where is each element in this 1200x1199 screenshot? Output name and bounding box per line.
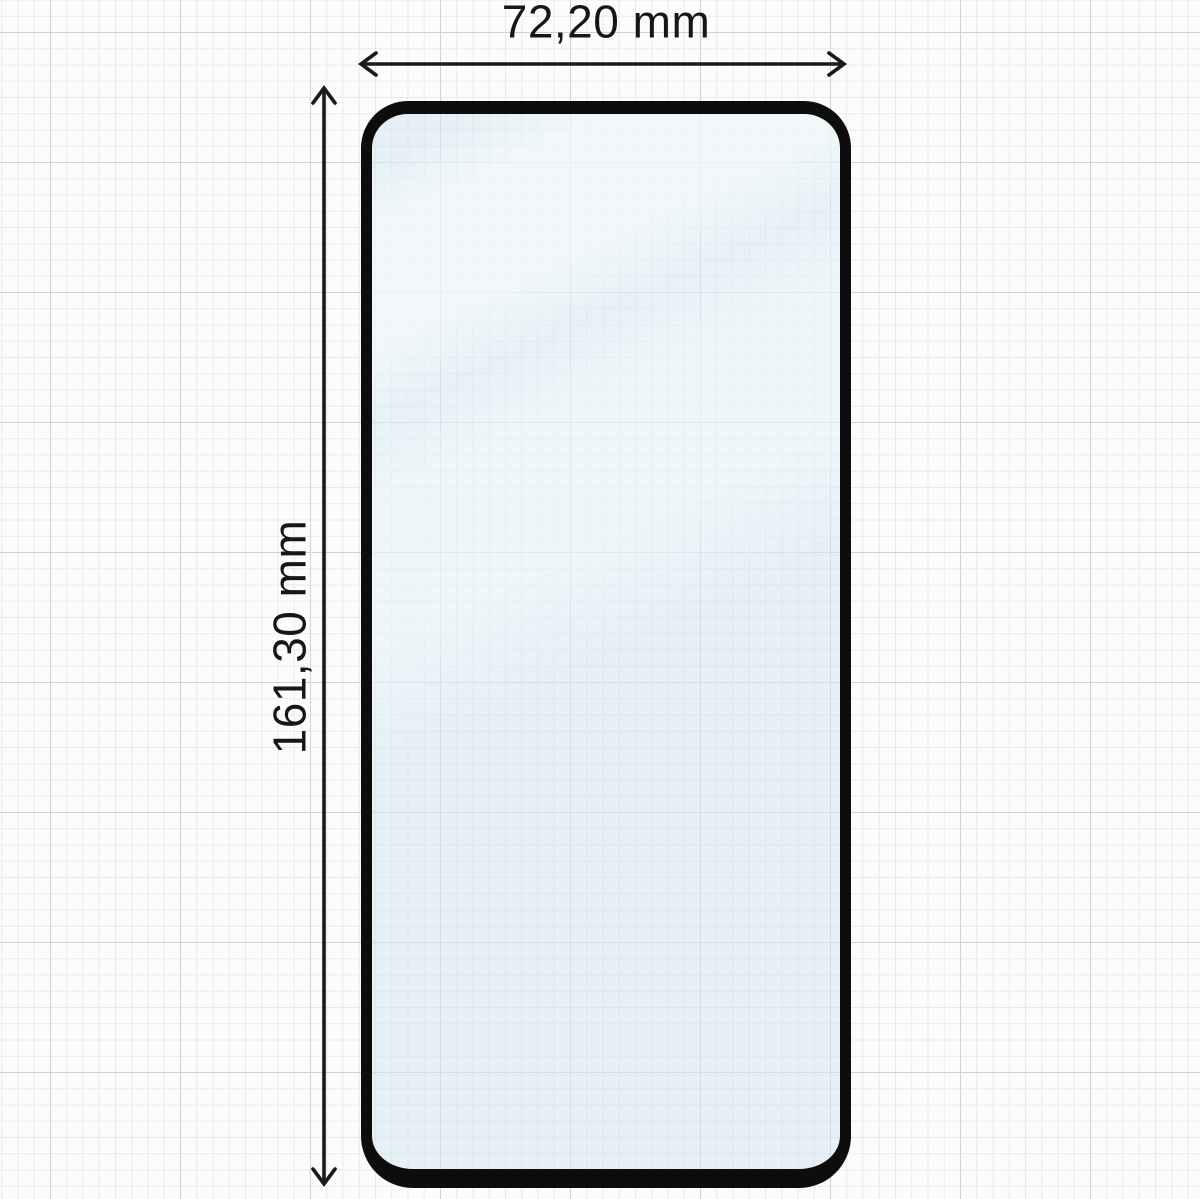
glass-reflection	[372, 114, 840, 1169]
width-arrow-head-right	[829, 53, 844, 75]
width-arrow-head-left	[361, 53, 376, 75]
height-dimension-label: 161,30 mm	[265, 520, 316, 755]
width-arrow	[361, 53, 844, 75]
height-arrow	[313, 88, 335, 1184]
screen-protector-glass	[361, 101, 851, 1188]
width-dimension-label: 72,20 mm	[502, 0, 711, 47]
graph-paper-canvas: 72,20 mm 161,30 mm	[0, 0, 1200, 1199]
height-arrow-head-top	[313, 88, 335, 103]
height-arrow-head-bottom	[313, 1169, 335, 1184]
